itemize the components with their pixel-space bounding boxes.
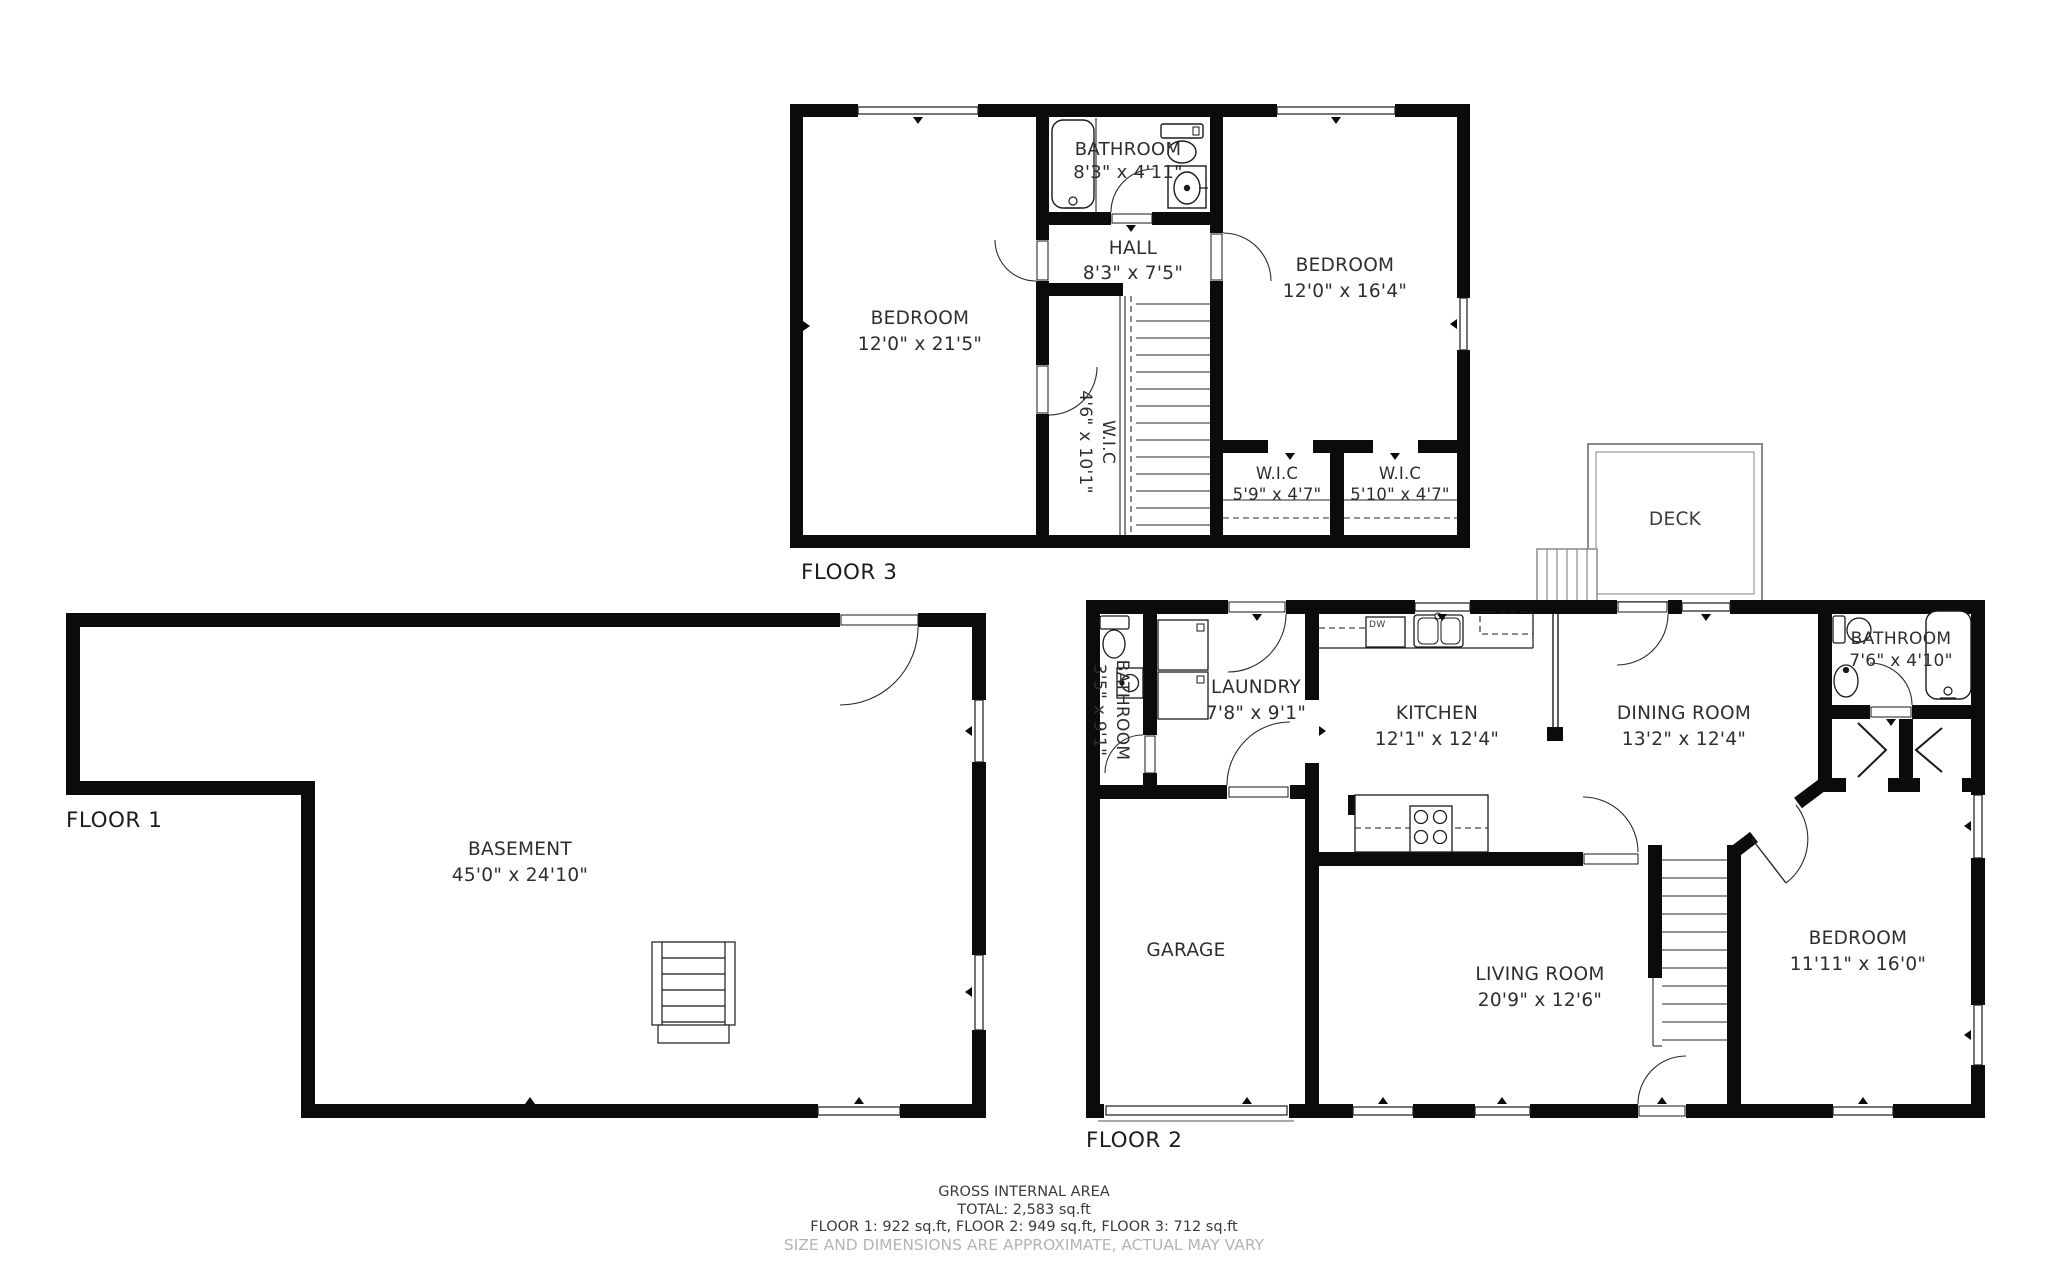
footer-title: GROSS INTERNAL AREA bbox=[624, 1184, 1424, 1202]
footer-floor-areas: FLOOR 1: 922 sq.ft, FLOOR 2: 949 sq.ft, … bbox=[624, 1219, 1424, 1237]
floor-label-3: FLOOR 3 bbox=[801, 560, 897, 585]
room-label-bedroom-f3-left: BEDROOM 12'0" x 21'5" bbox=[820, 306, 1020, 358]
room-label-dining: DINING ROOM 13'2" x 12'4" bbox=[1579, 701, 1789, 753]
stove-icon bbox=[1410, 806, 1452, 852]
floor2-stairs bbox=[1653, 860, 1727, 1046]
floor-label-2: FLOOR 2 bbox=[1086, 1128, 1182, 1153]
floor-label-1: FLOOR 1 bbox=[66, 808, 162, 833]
room-label-kitchen: KITCHEN 12'1" x 12'4" bbox=[1342, 701, 1532, 753]
room-label-bathroom-f2-left: BATHROOM 3'5" x 9'1" bbox=[1087, 620, 1133, 800]
garage-door bbox=[1098, 1106, 1294, 1121]
floor2-diagonal-wall bbox=[1733, 785, 1822, 853]
deck-label: DECK bbox=[1595, 507, 1755, 533]
floor1-windows bbox=[818, 700, 986, 1118]
room-label-bedroom-f3-right: BEDROOM 12'0" x 16'4" bbox=[1245, 253, 1445, 305]
room-label-bathroom-f3: BATHROOM 8'3" x 4'11" bbox=[1043, 138, 1213, 184]
deck-stairs bbox=[1537, 549, 1597, 601]
floor1-door bbox=[840, 615, 918, 705]
room-label-wic-tall-f3: W.I.C 4'6" x 10'1" bbox=[1073, 357, 1119, 527]
room-label-bathroom-f2-right: BATHROOM 7'6" x 4'10" bbox=[1821, 628, 1981, 672]
floorplan-page: BEDROOM 12'0" x 21'5" BATHROOM 8'3" x 4'… bbox=[0, 0, 2048, 1279]
room-label-living: LIVING ROOM 20'9" x 12'6" bbox=[1430, 962, 1650, 1014]
footer-total: TOTAL: 2,583 sq.ft bbox=[624, 1202, 1424, 1220]
room-label-wic-left-f3: W.I.C 5'9" x 4'7" bbox=[1222, 463, 1332, 505]
kitchen-sink-icon bbox=[1414, 613, 1463, 647]
room-label-garage: GARAGE bbox=[1106, 938, 1266, 964]
footer-disclaimer: SIZE AND DIMENSIONS ARE APPROXIMATE, ACT… bbox=[624, 1237, 1424, 1255]
room-label-wic-right-f3: W.I.C 5'10" x 4'7" bbox=[1345, 463, 1455, 505]
room-label-bedroom-f2: BEDROOM 11'11" x 16'0" bbox=[1748, 926, 1968, 978]
dishwasher-label: DW bbox=[1369, 620, 1386, 630]
footer-area-summary: GROSS INTERNAL AREA TOTAL: 2,583 sq.ft F… bbox=[624, 1184, 1424, 1254]
room-label-laundry: LAUNDRY 7'8" x 9'1" bbox=[1171, 675, 1341, 727]
room-label-basement: BASEMENT 45'0" x 24'10" bbox=[400, 837, 640, 889]
floor1-stairs bbox=[652, 942, 735, 1043]
floorplan-drawing bbox=[0, 0, 2048, 1279]
room-label-hall-f3: HALL 8'3" x 7'5" bbox=[1063, 236, 1203, 286]
